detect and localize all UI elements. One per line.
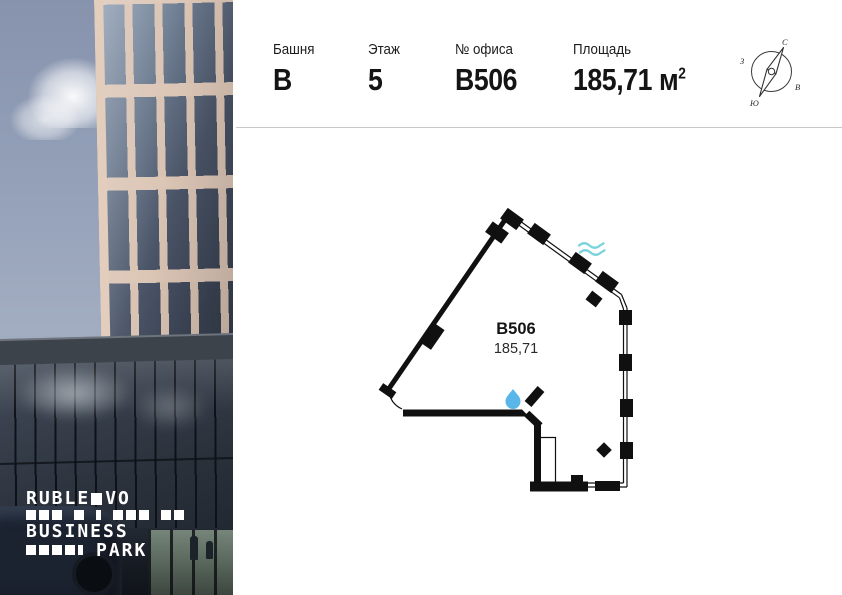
person-silhouette bbox=[190, 536, 198, 560]
building-photo: RUBLE VO BUSINESS PARK bbox=[0, 0, 233, 595]
plan-area-label: 185,71 bbox=[494, 341, 538, 357]
logo-line-2: BUSINESS bbox=[26, 524, 187, 539]
compass-rose: С З В Ю bbox=[728, 26, 824, 118]
logo-block-row-1 bbox=[26, 510, 187, 520]
field-area-value: 185,71 м2 bbox=[573, 62, 685, 98]
field-office-number-value: В506 bbox=[455, 62, 517, 98]
door-leaf bbox=[528, 389, 541, 404]
door-gap bbox=[524, 405, 530, 411]
cloud bbox=[10, 95, 80, 140]
rublevo-business-park-logo: RUBLE VO BUSINESS PARK bbox=[26, 491, 187, 559]
plan-unit-label: В506 bbox=[496, 320, 535, 338]
compass-hub bbox=[768, 68, 774, 74]
field-office-number-label: № офиса bbox=[455, 42, 521, 58]
page: { "header": { "fields": [ {"label": "Баш… bbox=[0, 0, 842, 595]
compass-west-label: З bbox=[740, 56, 745, 66]
field-area-label: Площадь bbox=[573, 42, 693, 58]
field-floor-label: Этаж bbox=[368, 42, 400, 58]
logo-word-vo: VO bbox=[105, 491, 131, 506]
interior-column bbox=[585, 291, 602, 308]
logo-word-park: PARK bbox=[96, 545, 147, 555]
compass-north-label: С bbox=[782, 37, 788, 47]
field-floor-value: 5 bbox=[368, 62, 398, 98]
waves-icon bbox=[579, 243, 605, 255]
field-floor: Этаж 5 bbox=[368, 42, 403, 98]
logo-word-business: BUSINESS bbox=[26, 524, 129, 539]
glass-reflection bbox=[14, 366, 134, 421]
water-drop-icon bbox=[506, 389, 521, 409]
field-tower: Башня В bbox=[273, 42, 318, 98]
logo-word-ruble: RUBLE bbox=[26, 491, 90, 506]
header-divider bbox=[236, 127, 842, 128]
field-office-number: № офиса В506 bbox=[455, 42, 527, 98]
shaft bbox=[539, 438, 556, 483]
logo-line-1: RUBLE VO bbox=[26, 491, 187, 506]
person-silhouette bbox=[206, 541, 213, 559]
logo-block-row-2: PARK bbox=[26, 545, 187, 555]
logo-square-glyph bbox=[91, 493, 102, 505]
compass-east-label: В bbox=[795, 82, 800, 92]
field-tower-label: Башня bbox=[273, 42, 314, 58]
compass-south-label: Ю bbox=[749, 98, 759, 108]
tower-facade bbox=[94, 0, 233, 354]
field-tower-value: В bbox=[273, 62, 312, 98]
field-area: Площадь 185,71 м2 bbox=[573, 42, 704, 98]
glass-reflection bbox=[130, 385, 210, 430]
floor-plan: В506 185,71 bbox=[366, 201, 646, 501]
square-meter-sup: 2 bbox=[678, 66, 685, 83]
interior-column bbox=[596, 442, 612, 458]
